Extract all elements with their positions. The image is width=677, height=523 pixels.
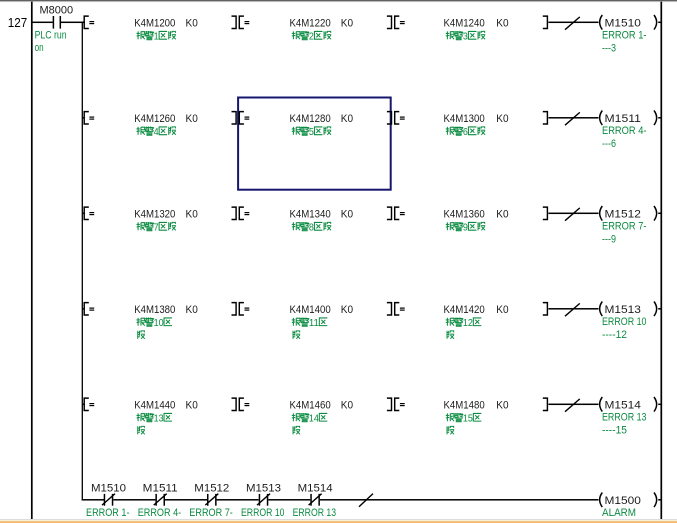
- svg-text:K4M1380: K4M1380: [134, 304, 175, 316]
- svg-text:ERROR 4-: ERROR 4-: [602, 125, 647, 137]
- svg-text:ERROR 13: ERROR 13: [602, 412, 647, 424]
- svg-text:K4M1440: K4M1440: [134, 399, 175, 411]
- svg-text:K4M1240: K4M1240: [444, 17, 485, 29]
- svg-text:K0: K0: [186, 399, 198, 411]
- svg-text:ERROR 7-: ERROR 7-: [602, 221, 647, 233]
- svg-text:M1514: M1514: [298, 483, 333, 495]
- svg-text:PLC run: PLC run: [35, 29, 67, 41]
- svg-text:K4M1400: K4M1400: [290, 304, 331, 316]
- svg-text:K0: K0: [341, 17, 353, 29]
- svg-text:K0: K0: [496, 113, 508, 125]
- svg-text:4: 4: [154, 126, 159, 138]
- svg-text:K4M1300: K4M1300: [444, 113, 485, 125]
- svg-text:8: 8: [309, 222, 314, 234]
- svg-text:15: 15: [463, 413, 473, 425]
- svg-text:ERROR 7-: ERROR 7-: [189, 507, 233, 519]
- svg-text:M1511: M1511: [605, 113, 641, 125]
- svg-text:----12: ----12: [602, 329, 627, 341]
- svg-text:M1500: M1500: [605, 495, 641, 507]
- svg-text:ALARM: ALARM: [602, 507, 636, 519]
- svg-text:13: 13: [154, 413, 164, 425]
- svg-text:K0: K0: [341, 304, 353, 316]
- svg-text:K0: K0: [186, 113, 198, 125]
- svg-text:ERROR 10: ERROR 10: [241, 507, 285, 519]
- svg-text:M1510: M1510: [91, 483, 126, 495]
- svg-text:K0: K0: [341, 208, 353, 220]
- svg-text:127: 127: [8, 16, 28, 30]
- svg-text:M1512: M1512: [194, 483, 229, 495]
- svg-text:K0: K0: [496, 17, 508, 29]
- svg-text:----15: ----15: [602, 424, 627, 436]
- svg-text:1: 1: [154, 31, 159, 43]
- svg-text:K4M1260: K4M1260: [134, 113, 175, 125]
- svg-text:K4M1220: K4M1220: [290, 17, 331, 29]
- svg-text:M1514: M1514: [605, 400, 641, 412]
- svg-text:9: 9: [463, 222, 468, 234]
- svg-text:5: 5: [309, 126, 314, 138]
- svg-text:M1513: M1513: [246, 483, 281, 495]
- svg-text:K4M1340: K4M1340: [290, 208, 331, 220]
- svg-text:K4M1280: K4M1280: [290, 113, 331, 125]
- svg-text:3: 3: [463, 31, 468, 43]
- svg-text:ERROR 4-: ERROR 4-: [138, 507, 182, 519]
- svg-text:12: 12: [463, 317, 473, 329]
- svg-text:10: 10: [154, 317, 164, 329]
- svg-text:on: on: [35, 42, 44, 54]
- svg-text:14: 14: [309, 413, 319, 425]
- svg-text:K0: K0: [496, 399, 508, 411]
- svg-text:K0: K0: [186, 208, 198, 220]
- svg-text:K4M1460: K4M1460: [290, 399, 331, 411]
- svg-text:---6: ---6: [602, 138, 616, 150]
- svg-text:11: 11: [309, 317, 319, 329]
- svg-text:M1511: M1511: [143, 483, 178, 495]
- svg-text:M1510: M1510: [605, 18, 641, 30]
- svg-text:ERROR 1-: ERROR 1-: [602, 30, 647, 42]
- svg-text:7: 7: [154, 222, 159, 234]
- svg-text:K4M1480: K4M1480: [444, 399, 485, 411]
- svg-text:6: 6: [463, 126, 468, 138]
- svg-text:K0: K0: [186, 17, 198, 29]
- svg-text:K0: K0: [496, 304, 508, 316]
- svg-text:K4M1320: K4M1320: [134, 208, 175, 220]
- svg-text:K4M1360: K4M1360: [444, 208, 485, 220]
- svg-text:2: 2: [309, 31, 314, 43]
- svg-text:K0: K0: [341, 399, 353, 411]
- svg-text:K0: K0: [341, 113, 353, 125]
- svg-text:K0: K0: [186, 304, 198, 316]
- svg-text:K0: K0: [496, 208, 508, 220]
- svg-text:K4M1200: K4M1200: [134, 17, 175, 29]
- svg-text:M1512: M1512: [605, 209, 641, 221]
- svg-text:K4M1420: K4M1420: [444, 304, 485, 316]
- svg-text:M8000: M8000: [40, 5, 74, 17]
- svg-text:ERROR 1-: ERROR 1-: [86, 507, 130, 519]
- svg-text:---9: ---9: [602, 233, 616, 245]
- svg-text:ERROR 13: ERROR 13: [293, 507, 337, 519]
- svg-text:M1513: M1513: [605, 304, 641, 316]
- svg-text:ERROR 10: ERROR 10: [602, 316, 647, 328]
- svg-text:---3: ---3: [602, 42, 616, 54]
